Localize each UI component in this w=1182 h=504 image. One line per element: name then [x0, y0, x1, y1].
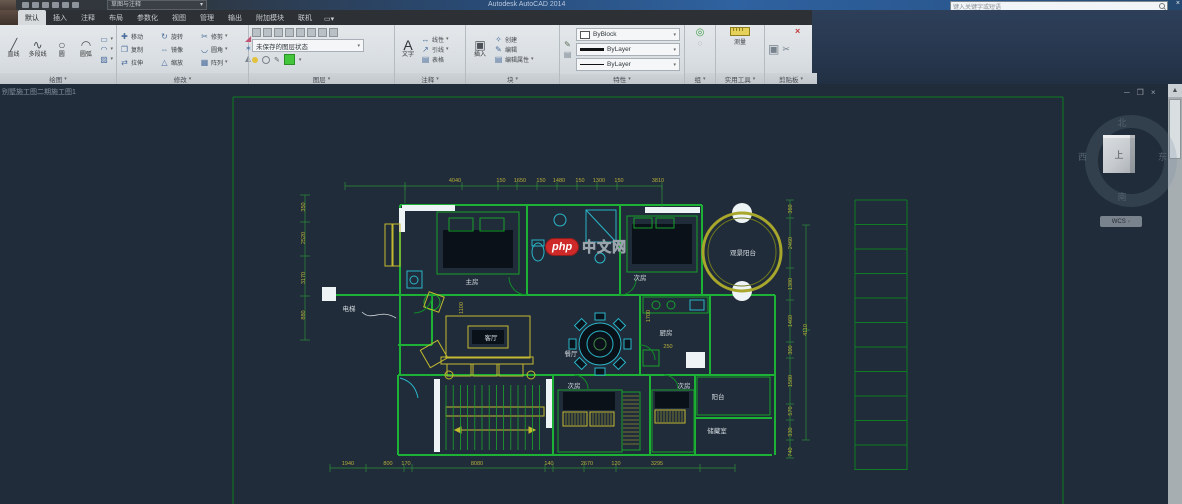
modify-grid: ✚移动↻旋转✂修剪▾❐复制⇔镜像◡圆角▾⇄拉伸△缩放▦阵列▾ [120, 30, 240, 69]
lineweight-value: ByLayer [607, 46, 631, 53]
watermark-php-badge: php [545, 238, 579, 256]
dim-linear-icon: ↔ [421, 35, 430, 44]
modify-label: 修剪 [211, 32, 223, 41]
table-button[interactable]: ▤表格 [421, 55, 449, 64]
panel-label-clipboard[interactable]: 剪贴板▾ [765, 73, 817, 84]
workspace-switcher[interactable]: 草图与注释 ▾ [107, 0, 207, 10]
modify-tool-阵列[interactable]: ▦阵列▾ [200, 58, 240, 67]
ribbon-tabs: 默认插入注释布局参数化视图管理输出附加模块联机 [18, 10, 319, 25]
line-icon: ╱ [10, 39, 17, 52]
viewcube-east[interactable]: 东 [1158, 150, 1167, 163]
modify-label: 复制 [131, 45, 143, 54]
polyline-button[interactable]: ∿ 多段线 [27, 39, 48, 59]
ribbon: 默认插入注释布局参数化视图管理输出附加模块联机 ▭▾ ╱ 直线 ∿ 多段线 ○ [0, 10, 812, 84]
lineweight-sample [580, 48, 604, 51]
close-icon[interactable]: × [1176, 0, 1180, 7]
ribbon-toggle-icon[interactable]: ▭▾ [324, 15, 334, 25]
quick-access-toolbar[interactable] [22, 2, 79, 8]
ribbon-close-icon[interactable]: × [795, 26, 800, 36]
app-corner [0, 10, 18, 25]
ribbon-tab-输出[interactable]: 输出 [221, 10, 249, 25]
modify-tool-修剪[interactable]: ✂修剪▾ [200, 32, 240, 41]
watermark: php 中文网 [545, 237, 627, 257]
scroll-up-icon[interactable]: ▲ [1168, 84, 1182, 97]
ribbon-tab-参数化[interactable]: 参数化 [130, 10, 165, 25]
ribbon-tab-管理[interactable]: 管理 [193, 10, 221, 25]
color-dropdown[interactable]: ByBlock ▾ [576, 28, 680, 41]
modify-label: 旋转 [171, 32, 183, 41]
color-value: ByBlock [593, 31, 616, 38]
viewcube[interactable]: 北 南 西 东 上 WCS▾ [1072, 102, 1172, 234]
insert-button[interactable]: ▣ 插入 [469, 39, 491, 59]
autocad-window: 草图与注释 ▾ Autodesk AutoCAD 2014 键入关键字或短语 ×… [0, 0, 1182, 504]
viewcube-north[interactable]: 北 [1117, 116, 1126, 129]
table-icon: ▤ [421, 55, 430, 64]
modify-label: 拉伸 [131, 58, 143, 67]
minimize-icon[interactable]: ─ [1124, 88, 1130, 97]
panel-modify: ✚移动↻旋转✂修剪▾❐复制⇔镜像◡圆角▾⇄拉伸△缩放▦阵列▾ ◢ ✶ ◭ 修改▾ [117, 25, 249, 84]
ungroup-icon[interactable]: ◌ [698, 39, 703, 48]
layer-on-icon[interactable] [252, 57, 258, 63]
modify-tool-拉伸[interactable]: ⇄拉伸 [120, 58, 160, 67]
drawing-file-tab[interactable]: 别墅施工图二期施工图1 [2, 87, 76, 97]
insert-icon: ▣ [474, 39, 485, 52]
panel-label-layers[interactable]: 图层▾ [249, 73, 394, 84]
modify-tool-复制[interactable]: ❐复制 [120, 45, 160, 54]
panel-layers: 未保存的图层状态 ▾ ✎ ▾ 图层▾ [249, 25, 395, 84]
modify-icon: ◡ [200, 45, 209, 54]
viewcube-south[interactable]: 南 [1117, 190, 1126, 203]
modify-icon: ✚ [120, 32, 129, 41]
workspace-label: 草图与注释 [111, 1, 141, 9]
ellipse-button[interactable]: ◠▾ [100, 45, 114, 54]
panel-label-utilities[interactable]: 实用工具▾ [716, 73, 764, 84]
layer-color-swatch[interactable] [284, 54, 295, 65]
circle-icon: ○ [58, 39, 65, 52]
arc-button[interactable]: ◠ 圆弧 [75, 39, 96, 59]
linetype-sample [580, 64, 604, 65]
modify-tool-缩放[interactable]: △缩放 [160, 58, 200, 67]
edit-icon: ✎ [494, 45, 503, 54]
modify-label: 阵列 [211, 58, 223, 67]
hatch-button[interactable]: ▨▾ [100, 55, 114, 64]
drawing-window-controls: ─ ❐ × [1124, 88, 1156, 97]
save-icon[interactable] [42, 2, 49, 8]
panel-group: ◎ ◌ 组▾ [685, 25, 716, 84]
modify-label: 缩放 [171, 58, 183, 67]
modify-icon: ✂ [200, 32, 209, 41]
ribbon-tab-默认[interactable]: 默认 [18, 10, 46, 25]
viewcube-top-face[interactable]: 上 [1103, 135, 1135, 173]
panel-label-annotation[interactable]: 注释▾ [395, 73, 465, 84]
chevron-down-icon: ▾ [200, 1, 203, 9]
app-menu-button[interactable] [0, 0, 16, 10]
panel-label-block[interactable]: 块▾ [466, 73, 559, 84]
viewcube-top-label: 上 [1114, 148, 1123, 161]
open-icon[interactable] [32, 2, 39, 8]
block-create-button[interactable]: ✧创建 [494, 35, 534, 44]
modify-label: 镜像 [171, 45, 183, 54]
restore-icon[interactable]: ❐ [1137, 88, 1144, 97]
tool-label: 多段线 [29, 52, 47, 59]
measure-icon[interactable] [730, 27, 750, 36]
rectangle-button[interactable]: ▭▾ [100, 35, 114, 44]
modify-tool-移动[interactable]: ✚移动 [120, 32, 160, 41]
panel-label-group[interactable]: 组▾ [685, 73, 715, 84]
ribbon-tab-布局[interactable]: 布局 [102, 10, 130, 25]
undo-icon[interactable] [52, 2, 59, 8]
panel-draw: ╱ 直线 ∿ 多段线 ○ 圆 ◠ 圆弧 [0, 25, 117, 84]
ribbon-tab-联机[interactable]: 联机 [291, 10, 319, 25]
arc-icon: ◠ [81, 39, 91, 52]
layer-tools[interactable] [252, 28, 338, 37]
linetype-value: ByLayer [607, 61, 631, 68]
leader-icon: ↗ [421, 45, 430, 54]
ribbon-tab-row: 默认插入注释布局参数化视图管理输出附加模块联机 ▭▾ [0, 10, 812, 25]
modify-tool-镜像[interactable]: ⇔镜像 [160, 45, 200, 54]
layer-lock-icon[interactable]: ✎ [274, 56, 280, 64]
panel-properties: ✎ ▤ ByBlock ▾ ByLayer ▾ [560, 25, 685, 84]
polyline-icon: ∿ [33, 39, 43, 52]
drawing-canvas[interactable]: 别墅施工图二期施工图1 ─ ❐ × ▲ 北 南 西 东 上 WCS▾ [0, 84, 1182, 504]
modify-icon: ❐ [120, 45, 129, 54]
wcs-dropdown[interactable]: WCS▾ [1100, 216, 1142, 227]
plot-icon[interactable] [72, 2, 79, 8]
panel-clipboard: ▣ ✂ 剪贴板▾ [765, 25, 817, 84]
new-icon[interactable] [22, 2, 29, 8]
panel-annotation: A 文字 ↔线性▾ ↗引线▾ ▤表格 注释▾ [395, 25, 466, 84]
leader-button[interactable]: ↗引线▾ [421, 45, 449, 54]
panel-label-properties[interactable]: 特性▾ [560, 74, 684, 84]
close-icon[interactable]: × [1151, 88, 1156, 97]
tool-label: 插入 [474, 52, 486, 59]
modify-icon: ⇄ [120, 58, 129, 67]
measure-label: 测量 [734, 37, 746, 46]
title-bar: 草图与注释 ▾ Autodesk AutoCAD 2014 键入关键字或短语 × [0, 0, 1182, 10]
match-properties-icon[interactable]: ✎ [563, 40, 572, 49]
redo-icon[interactable] [62, 2, 69, 8]
tool-label: 圆弧 [80, 52, 92, 59]
ribbon-empty-area [812, 10, 1182, 84]
panel-block: ▣ 插入 ✧创建 ✎编辑 ▤编辑属性▾ 块▾ [466, 25, 560, 84]
modify-label: 移动 [131, 32, 143, 41]
rectangle-icon: ▭ [100, 35, 109, 44]
block-attr-button[interactable]: ▤编辑属性▾ [494, 55, 534, 64]
ribbon-body: ╱ 直线 ∿ 多段线 ○ 圆 ◠ 圆弧 [0, 25, 812, 85]
window-title: Autodesk AutoCAD 2014 [488, 1, 565, 8]
text-button[interactable]: A 文字 [398, 39, 418, 59]
linetype-dropdown[interactable]: ByLayer ▾ [576, 58, 680, 71]
block-edit-button[interactable]: ✎编辑 [494, 45, 534, 54]
layer-state-dropdown[interactable]: 未保存的图层状态 ▾ [252, 39, 364, 52]
ribbon-tab-附加模块[interactable]: 附加模块 [249, 10, 291, 25]
panel-utilities: 测量 实用工具▾ [716, 25, 765, 84]
modify-label: 圆角 [211, 45, 223, 54]
ellipse-icon: ◠ [100, 45, 109, 54]
create-icon: ✧ [494, 35, 503, 44]
ribbon-tab-注释[interactable]: 注释 [74, 10, 102, 25]
watermark-cn-text: 中文网 [582, 237, 627, 257]
group-icon[interactable]: ◎ [696, 27, 705, 38]
ribbon-tab-插入[interactable]: 插入 [46, 10, 74, 25]
search-icon[interactable] [1159, 3, 1165, 9]
modify-icon: ⇔ [160, 45, 169, 54]
paste-icon[interactable]: ▣ [768, 42, 779, 56]
circle-button[interactable]: ○ 圆 [51, 39, 72, 59]
viewcube-west[interactable]: 西 [1078, 150, 1087, 163]
layer-state-label: 未保存的图层状态 [256, 41, 308, 51]
modify-tool-旋转[interactable]: ↻旋转 [160, 32, 200, 41]
cut-icon[interactable]: ✂ [782, 44, 790, 55]
text-icon: A [403, 39, 412, 52]
tool-label: 圆 [59, 52, 65, 59]
lineweight-dropdown[interactable]: ByLayer ▾ [576, 43, 680, 56]
modify-tool-圆角[interactable]: ◡圆角▾ [200, 45, 240, 54]
modify-icon: △ [160, 58, 169, 67]
tool-label: 直线 [8, 52, 20, 59]
hatch-icon: ▨ [100, 55, 109, 64]
dim-linear-button[interactable]: ↔线性▾ [421, 35, 449, 44]
layer-freeze-icon[interactable] [262, 56, 270, 64]
properties-list-icon[interactable]: ▤ [563, 50, 572, 59]
panel-label-draw[interactable]: 绘图▾ [0, 73, 116, 84]
ribbon-tab-视图[interactable]: 视图 [165, 10, 193, 25]
modify-icon: ↻ [160, 32, 169, 41]
modify-icon: ▦ [200, 58, 209, 67]
tool-label: 文字 [402, 52, 414, 59]
color-swatch [580, 31, 590, 39]
line-button[interactable]: ╱ 直线 [3, 39, 24, 59]
edit-attr-icon: ▤ [494, 55, 503, 64]
panel-label-modify[interactable]: 修改▾ [117, 73, 248, 84]
